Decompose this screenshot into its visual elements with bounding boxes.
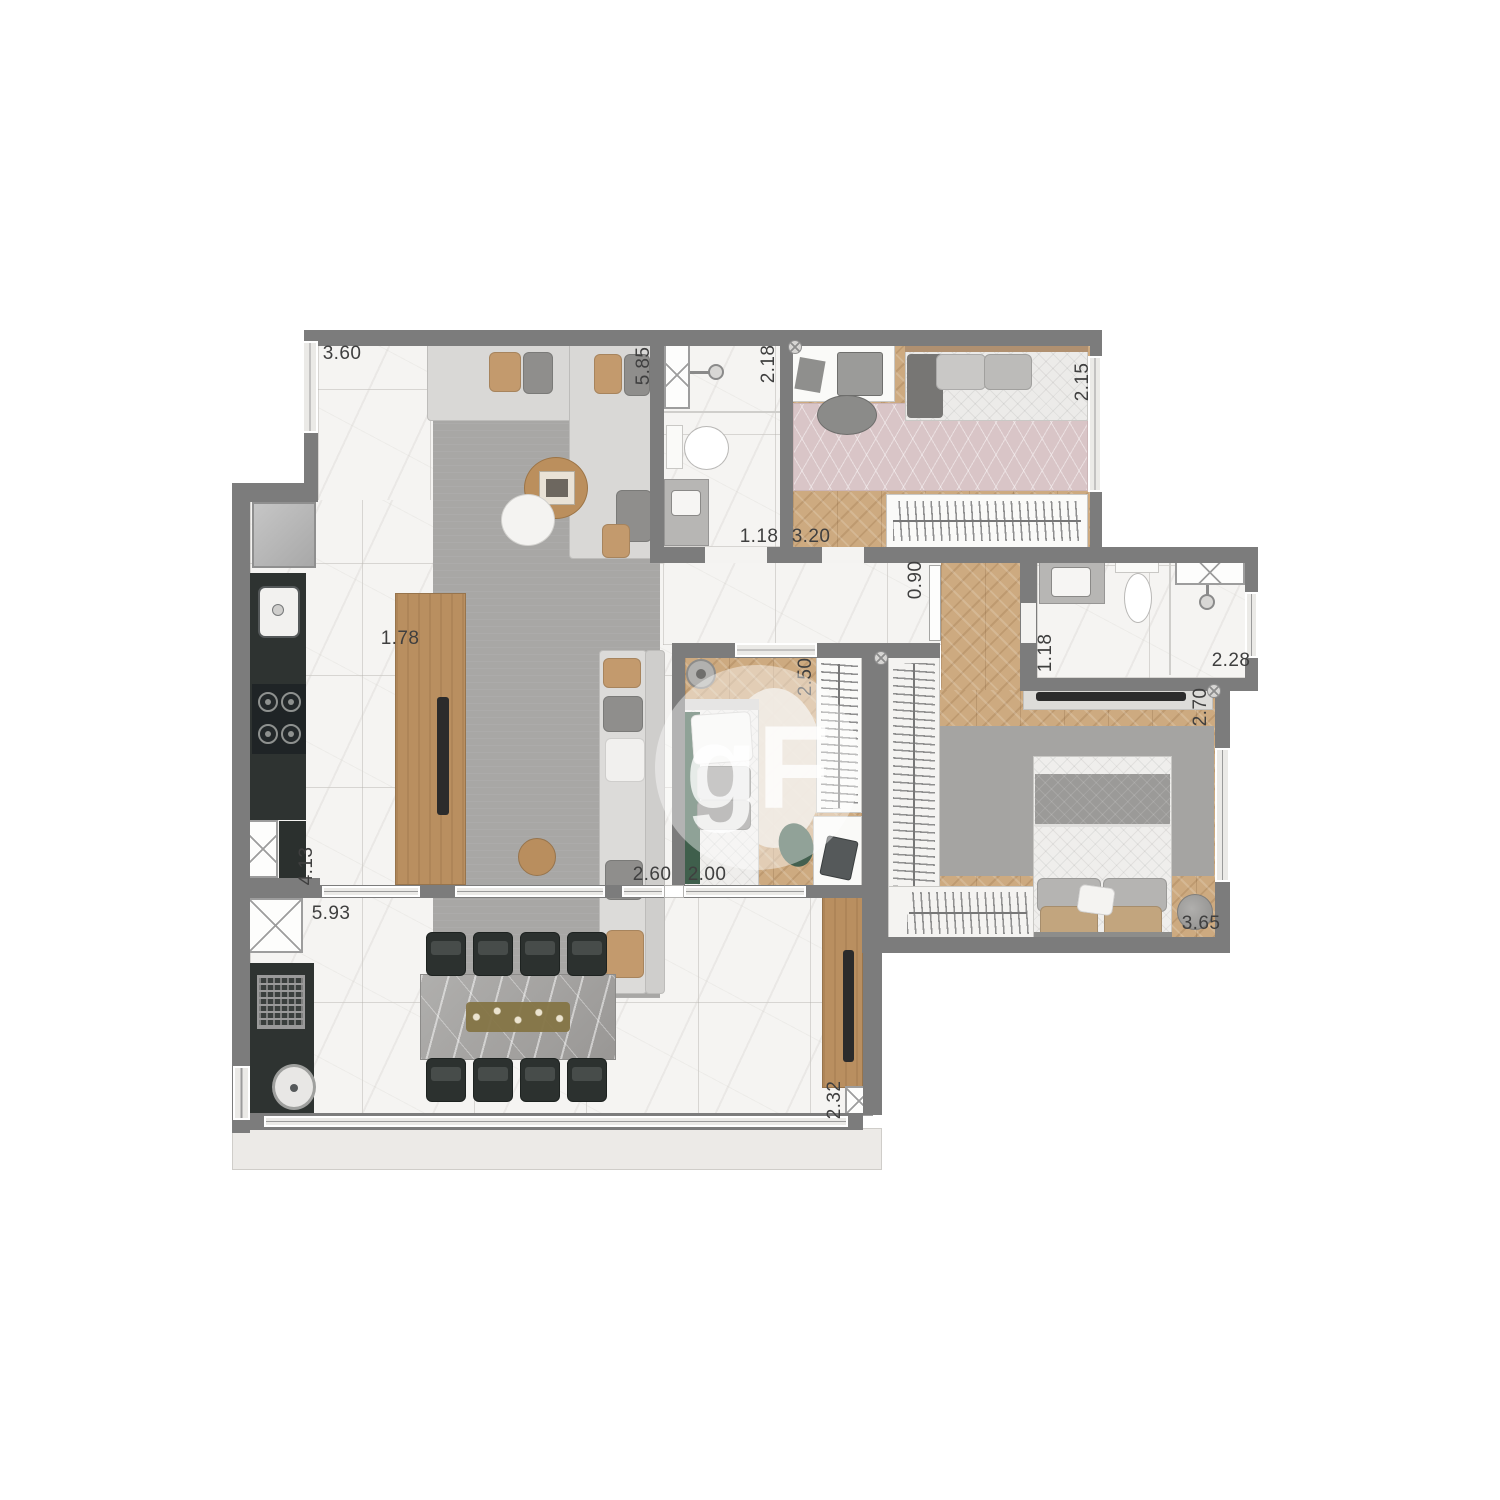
cabinet-shaft bbox=[248, 820, 278, 878]
balcony-glass-rail bbox=[264, 1116, 848, 1127]
dimension-label: 1.18 bbox=[740, 526, 779, 548]
dimension-label: 2.15 bbox=[1072, 363, 1094, 402]
burner-icon bbox=[258, 724, 278, 744]
dimension-label: 2.00 bbox=[688, 864, 727, 886]
window bbox=[1245, 592, 1258, 658]
shower-head-icon bbox=[1199, 594, 1215, 610]
dimension-label: 0.90 bbox=[905, 561, 927, 600]
bed-pillow bbox=[984, 354, 1032, 390]
dimension-label: 1.18 bbox=[1035, 634, 1057, 673]
table-runner-decor bbox=[466, 1002, 570, 1032]
desk-chair bbox=[817, 395, 877, 435]
dimension-label: 2.18 bbox=[758, 345, 780, 384]
sliding-window bbox=[684, 886, 806, 897]
tv-icon bbox=[437, 697, 449, 815]
window bbox=[302, 341, 318, 433]
burner-icon bbox=[258, 692, 278, 712]
sofa-cushion bbox=[489, 352, 521, 392]
wardrobe bbox=[886, 494, 1088, 548]
open-wardrobe bbox=[816, 657, 862, 813]
sprinkler-symbol bbox=[788, 340, 802, 354]
dining-chair bbox=[520, 932, 560, 976]
bed-pillow bbox=[697, 766, 751, 800]
door-opening bbox=[822, 547, 864, 563]
round-sink-drain bbox=[290, 1084, 298, 1092]
dimension-label: 4.13 bbox=[296, 847, 318, 886]
dining-chair bbox=[567, 1058, 607, 1102]
bed-pillow bbox=[697, 800, 751, 830]
sofa-cushion bbox=[594, 354, 622, 394]
wardrobe-rod bbox=[838, 664, 840, 808]
toilet-tank bbox=[666, 425, 683, 469]
laptop-icon bbox=[837, 352, 883, 396]
sofa-cushion bbox=[603, 658, 641, 688]
burner-icon bbox=[281, 692, 301, 712]
sliding-window bbox=[622, 886, 664, 897]
sofa-cushion bbox=[523, 352, 553, 394]
faucet-icon bbox=[272, 604, 284, 616]
tv-icon bbox=[1036, 692, 1186, 701]
wardrobe-rod bbox=[893, 520, 1081, 522]
window-post bbox=[664, 885, 684, 898]
dimension-label: 3.60 bbox=[323, 343, 362, 365]
barbecue-grill-icon bbox=[257, 975, 305, 1029]
wall-segment bbox=[232, 500, 250, 1133]
sofa-cushion bbox=[606, 930, 644, 978]
bed-headboard bbox=[684, 699, 759, 710]
window bbox=[233, 1066, 250, 1120]
shaft bbox=[248, 898, 303, 953]
dimension-label: 1.78 bbox=[381, 628, 420, 650]
wall-segment bbox=[304, 428, 318, 484]
closet-rod bbox=[909, 912, 1027, 914]
wall-segment bbox=[304, 330, 1102, 346]
sofa-cushion bbox=[605, 738, 645, 782]
sofa-two-back bbox=[645, 650, 665, 994]
sliding-door bbox=[735, 643, 817, 657]
burner-icon bbox=[281, 724, 301, 744]
side-table-wood bbox=[518, 838, 556, 876]
wall-segment bbox=[863, 943, 882, 1115]
mousepad-icon bbox=[794, 357, 825, 393]
bed-pillow bbox=[1076, 884, 1116, 917]
dining-chair bbox=[426, 932, 466, 976]
sliding-window bbox=[455, 886, 605, 897]
toilet-bowl bbox=[684, 426, 729, 470]
wall-segment bbox=[862, 643, 888, 953]
coffee-table-white bbox=[501, 494, 555, 546]
refrigerator-icon bbox=[252, 502, 316, 568]
dimension-label: 2.32 bbox=[824, 1081, 846, 1120]
bed-pillow bbox=[690, 711, 753, 765]
dimension-label: 2.28 bbox=[1212, 650, 1251, 672]
dining-chair bbox=[520, 1058, 560, 1102]
bed-fold-line bbox=[1035, 824, 1170, 827]
shower-divider bbox=[664, 411, 780, 413]
sink-icon bbox=[1051, 567, 1091, 597]
shower-head-icon bbox=[708, 364, 724, 380]
shower-tray bbox=[1175, 560, 1245, 585]
tv-icon bbox=[843, 950, 854, 1062]
sofa-cushion bbox=[603, 696, 643, 732]
dimension-label: 3.20 bbox=[792, 526, 831, 548]
dimension-label: 2.50 bbox=[795, 658, 817, 697]
sliding-window bbox=[322, 886, 420, 897]
dining-chair bbox=[426, 1058, 466, 1102]
door-leaf bbox=[929, 565, 941, 641]
hallway-floor bbox=[941, 563, 1020, 690]
sofa-cushion bbox=[602, 524, 630, 558]
hall-floor bbox=[663, 563, 941, 645]
sink-icon bbox=[671, 490, 701, 516]
wall-segment bbox=[868, 937, 1230, 953]
dimension-label: 3.65 bbox=[1182, 913, 1221, 935]
door-opening bbox=[705, 547, 767, 563]
sprinkler-symbol bbox=[1207, 684, 1221, 698]
tray-books bbox=[546, 479, 568, 497]
stove-icon bbox=[252, 684, 306, 754]
dining-chair bbox=[567, 932, 607, 976]
walk-in-closet bbox=[888, 886, 1034, 938]
bedside-lamp-center bbox=[696, 669, 706, 679]
dining-chair bbox=[473, 1058, 513, 1102]
dimension-label: 5.85 bbox=[633, 347, 655, 386]
dining-chair bbox=[473, 932, 513, 976]
dimension-label: 2.60 bbox=[633, 864, 672, 886]
shower-tray bbox=[664, 341, 690, 409]
floor-plan-canvas: 3.605.852.182.151.183.200.901.782.501.18… bbox=[0, 0, 1500, 1500]
bed-quilt-band bbox=[1035, 774, 1170, 824]
balcony-slab bbox=[232, 1128, 882, 1170]
dimension-label: 5.93 bbox=[312, 903, 351, 925]
sprinkler-symbol bbox=[874, 651, 888, 665]
window bbox=[1215, 748, 1230, 882]
toilet-bowl bbox=[1124, 573, 1152, 623]
wall-segment bbox=[672, 643, 685, 898]
bathroom-divider bbox=[1169, 563, 1171, 675]
bed-pillow bbox=[936, 354, 986, 390]
closet-rod bbox=[913, 664, 915, 886]
door-opening bbox=[1021, 603, 1036, 643]
